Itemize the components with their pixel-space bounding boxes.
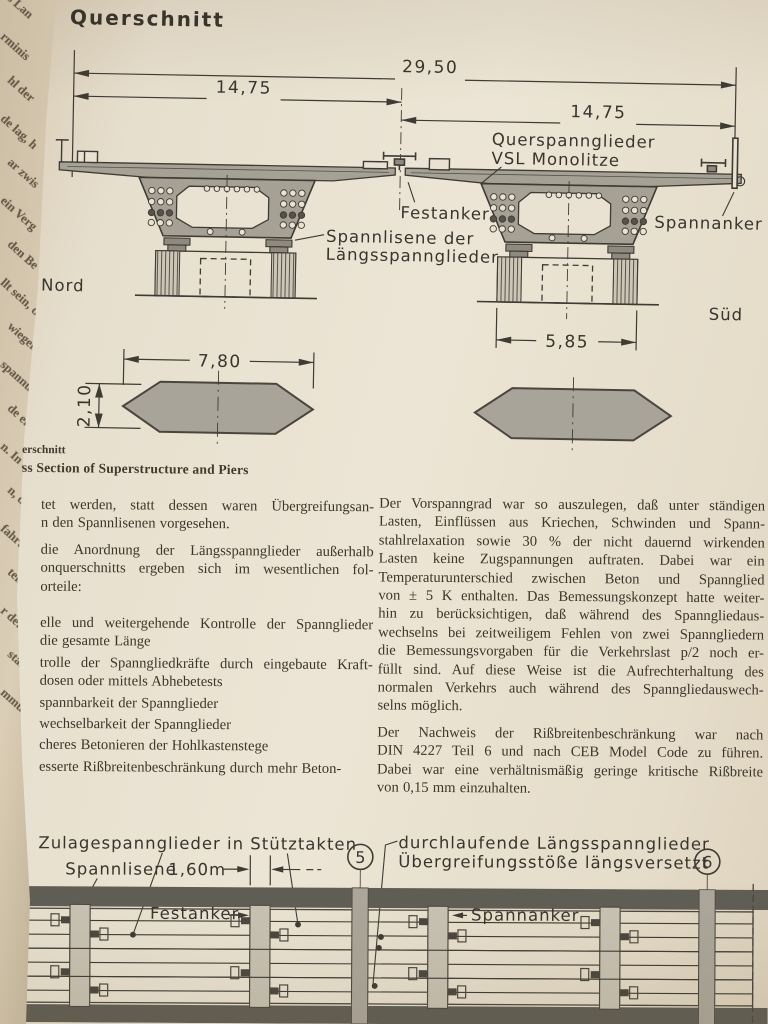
list-item: cheres Betonieren der Hohlkastenstege <box>39 736 372 757</box>
list-item: trolle der Spanngliedkräfte durch eingeb… <box>40 654 373 693</box>
label-transverse-tendons-2: VSL Monolitze <box>491 149 620 170</box>
dim-half-left: 14,75 <box>216 78 273 99</box>
axis-centerline <box>400 88 402 211</box>
label-fixed-anchor: Festanker <box>150 904 239 923</box>
figure-caption: erschnitt ss Section of Superstructure a… <box>22 444 249 478</box>
dim-pier-len: 7,80 <box>198 351 242 372</box>
box-void <box>518 192 611 235</box>
dim-pier-gap: 5,85 <box>545 332 589 353</box>
pier-section-right <box>474 375 671 455</box>
dim-total: 29,50 <box>402 57 459 78</box>
label-south: Süd <box>709 305 744 325</box>
dim-half-right: 14,75 <box>570 102 627 123</box>
text-line: onquerschnitts ergeben sich im wesentlic… <box>40 559 373 580</box>
bottom-web-band <box>7 1004 767 1024</box>
label-lap-joints: Übergreifungsstöße längsversetzt <box>398 852 709 873</box>
left-girder <box>53 140 396 312</box>
paragraph: tet werden, statt dessen waren Übergreif… <box>41 496 374 535</box>
text-line: esserte Rißbreitenbeschränkung durch meh… <box>39 758 372 779</box>
label-north: Nord <box>41 276 85 296</box>
text-line: Lasten keine Zugspannungen auftraten. Da… <box>379 550 765 571</box>
caption-german: erschnitt <box>22 444 249 458</box>
text-line: die gesamte Länge <box>40 632 373 653</box>
tendon-lines <box>16 920 753 994</box>
figure-title: Querschnitt <box>70 5 225 32</box>
list-item: elle und weitergehende Kontrolle der Spa… <box>40 614 373 653</box>
label-lisene-2: Längsspannglieder <box>326 245 499 267</box>
scanned-journal-page: s Lanrminishl derde lag, har zwisein Ver… <box>0 0 768 1024</box>
cross-section-drawing: 29,50 14,75 14,75 <box>0 0 768 505</box>
text-line: orteile: <box>40 577 373 598</box>
text-line: selns möglich. <box>377 697 763 718</box>
text-line: wechselbarkeit der Spannglieder <box>39 715 372 736</box>
label-fixed-anchor: Festanker <box>400 203 490 224</box>
text-line: cheres Betonieren der Hohlkastenstege <box>39 736 372 757</box>
paragraph: Der Nachweis der Rißbreitenbeschränkung … <box>377 723 764 800</box>
tendon-anchors <box>51 914 638 999</box>
text-line: spannbarkeit der Spannglieder <box>39 693 372 714</box>
list-item: wechselbarkeit der Spannglieder <box>39 715 372 736</box>
segment-panels <box>16 908 753 1006</box>
cross-section-figure: Querschnitt 29,50 14, <box>0 0 768 505</box>
text-line: von 0,15 mm einzuhalten. <box>377 779 763 800</box>
kerb <box>429 159 449 170</box>
text-line: n den Spannlisenen vorgesehen. <box>41 514 374 535</box>
svg-text:6: 6 <box>702 853 712 872</box>
dim-lisene: 1,60m <box>168 860 226 879</box>
label-lisene: Spannlisene <box>65 859 177 879</box>
dim-pier-thk: 2,10 <box>75 383 96 427</box>
label-stress-anchor: Spannanker <box>654 213 763 234</box>
text-column-right: Der Vorspanngrad war so auszulegen, daß … <box>377 494 765 800</box>
tendon-layout-figure: ) Zulagespannglieder in Stütztakten Span… <box>0 822 768 1024</box>
top-web-band <box>8 886 768 910</box>
tendon-layout-drawing: ) Zulagespannglieder in Stütztakten Span… <box>0 822 768 1024</box>
text-column-left: tet werden, statt dessen waren Übergreif… <box>39 496 374 779</box>
paragraph: Der Vorspanngrad war so auszulegen, daß … <box>377 494 765 718</box>
paragraph: die Anordnung der Längsspannglieder auße… <box>40 541 373 599</box>
label-zulage: Zulagespannglieder in Stütztakten <box>38 833 357 854</box>
dim-lisene-lines <box>222 855 321 886</box>
list-item: spannbarkeit der Spannglieder <box>39 693 372 714</box>
text-line: dosen oder mittels Abhebetests <box>40 672 373 693</box>
svg-text:5: 5 <box>355 848 365 867</box>
caption-english: ss Section of Superstructure and Piers <box>22 460 249 478</box>
dimension-arrows <box>73 70 736 130</box>
box-void <box>176 186 269 229</box>
label-stress-anchor: Spannanker <box>471 905 580 925</box>
list-item: esserte Rißbreitenbeschränkung durch meh… <box>39 758 372 779</box>
extension-line <box>72 50 74 177</box>
label-continuous: durchlaufende Längsspannglieder <box>398 833 710 854</box>
